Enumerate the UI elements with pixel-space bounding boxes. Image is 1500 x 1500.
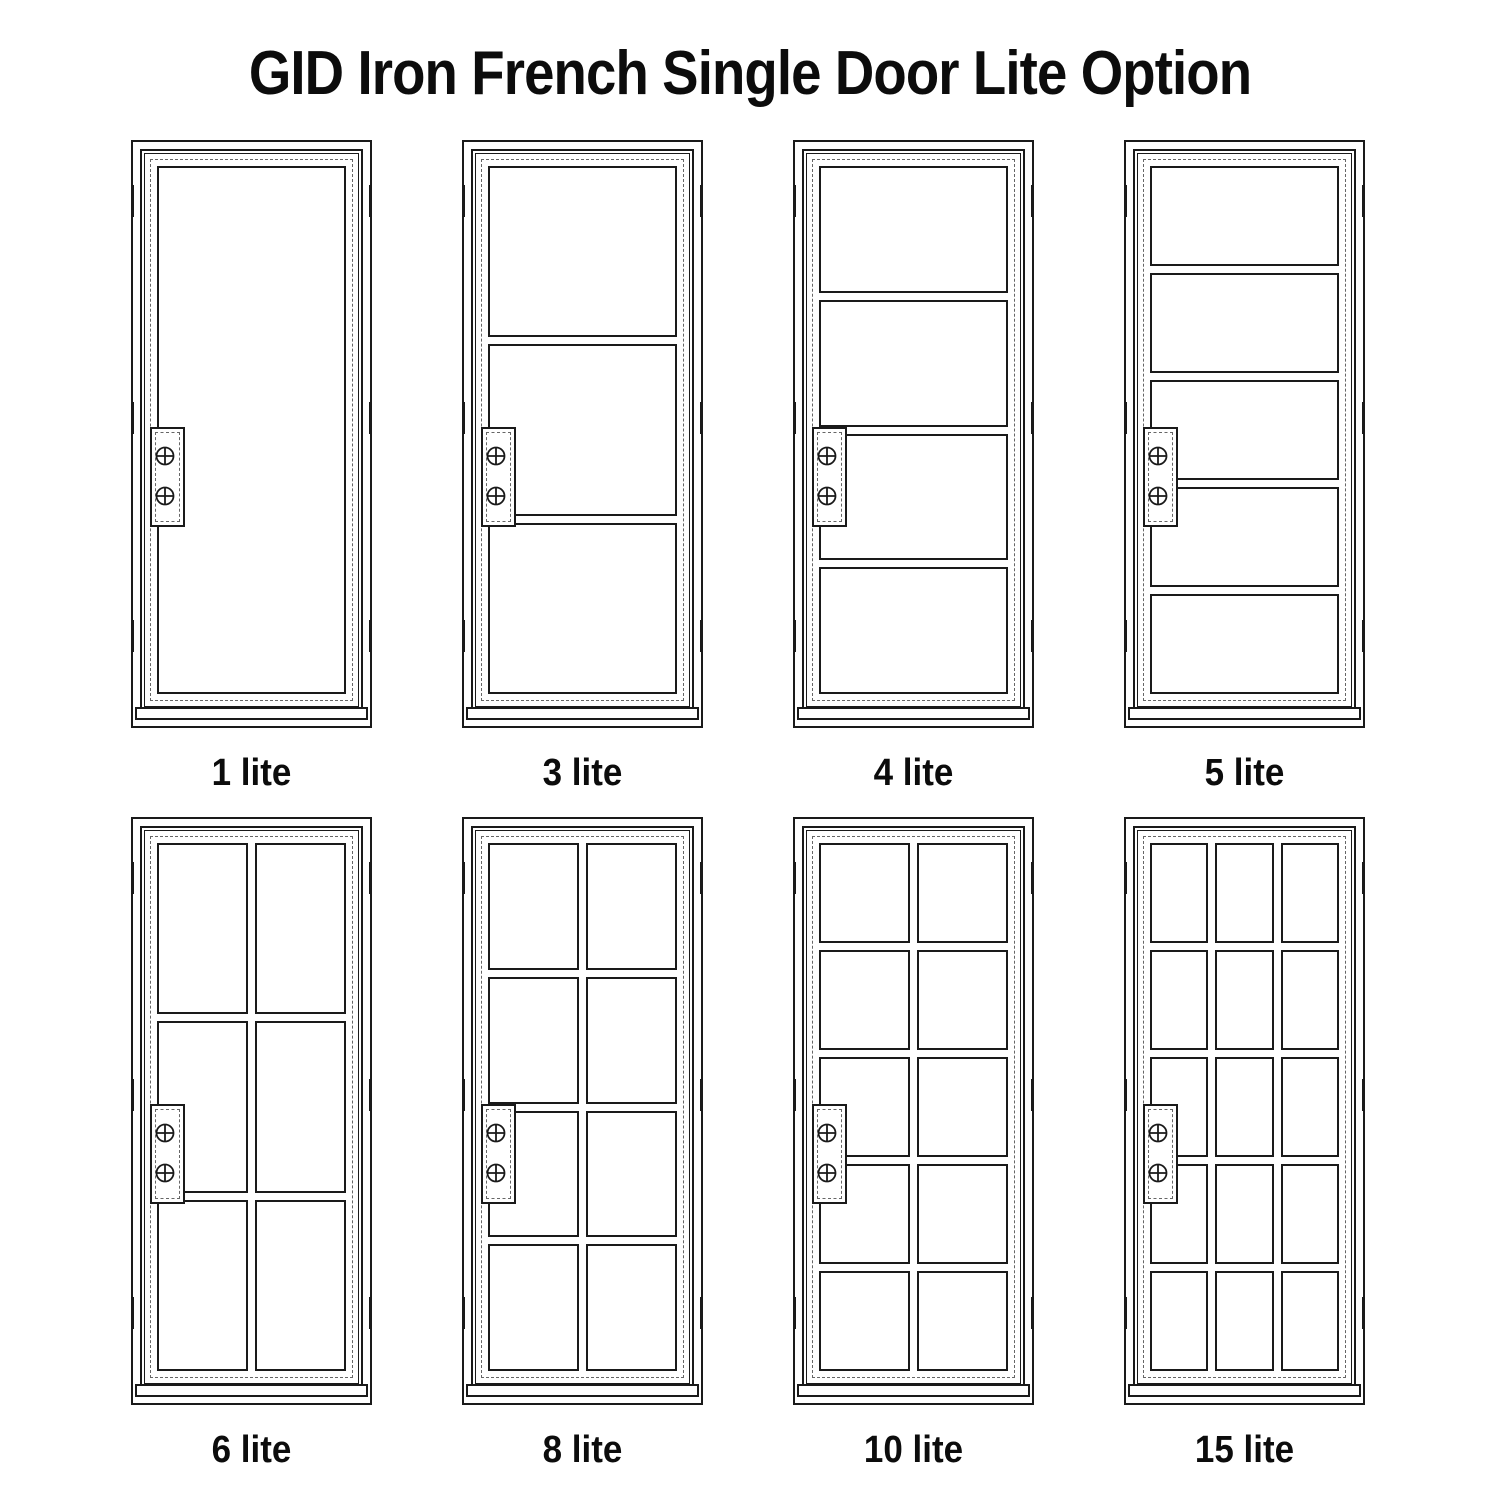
glass-pane xyxy=(586,1244,677,1371)
glass-pane xyxy=(586,977,677,1104)
hinge-mark-icon xyxy=(131,402,134,434)
glass-pane xyxy=(1215,843,1273,943)
glass-grid xyxy=(157,843,346,1371)
door-label: 8 lite xyxy=(472,1429,694,1472)
glass-pane xyxy=(255,843,346,1014)
glass-pane xyxy=(1281,950,1339,1050)
glass-pane xyxy=(488,843,579,970)
glass-pane xyxy=(1150,950,1208,1050)
hinge-mark-icon xyxy=(1124,402,1127,434)
glass-pane xyxy=(1215,950,1273,1050)
hinge-mark-icon xyxy=(1031,1079,1034,1111)
hinge-mark-icon xyxy=(1031,620,1034,652)
glass-pane xyxy=(819,300,1008,427)
screw-icon xyxy=(1147,445,1169,467)
hinge-mark-icon xyxy=(1124,185,1127,217)
hinge-mark-icon xyxy=(700,1079,703,1111)
glass-pane xyxy=(157,166,346,694)
hinge-mark-icon xyxy=(462,620,465,652)
hinge-mark-icon xyxy=(462,185,465,217)
hinge-mark-icon xyxy=(1124,1079,1127,1111)
glass-pane xyxy=(819,567,1008,694)
hinge-mark-icon xyxy=(700,1297,703,1329)
door-bottom-sill xyxy=(466,707,699,720)
door-figure-15-lite: 15 lite xyxy=(1124,817,1365,1472)
door-bottom-sill xyxy=(797,1384,1030,1397)
glass-pane xyxy=(819,166,1008,293)
glass-pane xyxy=(1281,843,1339,943)
screw-icon xyxy=(485,1122,507,1144)
glass-pane xyxy=(488,344,677,515)
glass-grid xyxy=(819,843,1008,1371)
hinge-mark-icon xyxy=(1362,1079,1365,1111)
hinge-mark-icon xyxy=(1124,862,1127,894)
glass-pane xyxy=(917,843,1008,943)
door-drawing xyxy=(1124,817,1365,1405)
door-bottom-sill xyxy=(135,707,368,720)
door-label: 1 lite xyxy=(141,752,363,795)
door-figure-1-lite: 1 lite xyxy=(131,140,372,795)
lock-plate xyxy=(812,427,847,527)
screw-icon xyxy=(1147,485,1169,507)
screw-icon xyxy=(485,1162,507,1184)
door-figure-3-lite: 3 lite xyxy=(462,140,703,795)
lock-plate xyxy=(812,1104,847,1204)
door-label: 4 lite xyxy=(803,752,1025,795)
hinge-mark-icon xyxy=(131,1297,134,1329)
hinge-mark-icon xyxy=(1031,185,1034,217)
lock-plate xyxy=(481,427,516,527)
hinge-mark-icon xyxy=(1124,620,1127,652)
glass-pane xyxy=(255,1021,346,1192)
hinge-mark-icon xyxy=(369,185,372,217)
glass-pane xyxy=(586,1111,677,1238)
glass-pane xyxy=(1150,843,1208,943)
glass-pane xyxy=(488,523,677,694)
hinge-mark-icon xyxy=(369,1079,372,1111)
screw-icon xyxy=(1147,1162,1169,1184)
glass-grid xyxy=(819,166,1008,694)
screw-icon xyxy=(154,1162,176,1184)
glass-grid xyxy=(1150,166,1339,694)
hinge-mark-icon xyxy=(131,862,134,894)
door-drawing xyxy=(793,140,1034,728)
glass-pane xyxy=(488,166,677,337)
screw-icon xyxy=(816,1122,838,1144)
hinge-mark-icon xyxy=(131,620,134,652)
lock-plate xyxy=(150,1104,185,1204)
hinge-mark-icon xyxy=(462,402,465,434)
hinge-mark-icon xyxy=(1362,862,1365,894)
hinge-mark-icon xyxy=(1362,402,1365,434)
glass-pane xyxy=(488,977,579,1104)
glass-grid xyxy=(488,166,677,694)
door-drawing xyxy=(131,140,372,728)
door-bottom-sill xyxy=(466,1384,699,1397)
lock-plate xyxy=(1143,1104,1178,1204)
door-drawing xyxy=(462,140,703,728)
door-bottom-sill xyxy=(1128,707,1361,720)
lock-plate xyxy=(150,427,185,527)
screw-icon xyxy=(154,485,176,507)
hinge-mark-icon xyxy=(369,1297,372,1329)
screw-icon xyxy=(816,1162,838,1184)
hinge-mark-icon xyxy=(1031,402,1034,434)
screw-icon xyxy=(816,445,838,467)
door-figure-4-lite: 4 lite xyxy=(793,140,1034,795)
screw-icon xyxy=(1147,1122,1169,1144)
glass-pane xyxy=(819,843,910,943)
hinge-mark-icon xyxy=(700,185,703,217)
glass-pane xyxy=(819,1271,910,1371)
glass-pane xyxy=(1215,1164,1273,1264)
door-drawing xyxy=(1124,140,1365,728)
glass-pane xyxy=(157,843,248,1014)
glass-pane xyxy=(157,1200,248,1371)
hinge-mark-icon xyxy=(700,620,703,652)
hinge-mark-icon xyxy=(369,620,372,652)
glass-pane xyxy=(1150,166,1339,266)
glass-pane xyxy=(586,843,677,970)
screw-icon xyxy=(485,445,507,467)
hinge-mark-icon xyxy=(793,1297,796,1329)
hinge-mark-icon xyxy=(793,402,796,434)
hinge-mark-icon xyxy=(700,402,703,434)
hinge-mark-icon xyxy=(793,1079,796,1111)
glass-pane xyxy=(1215,1057,1273,1157)
hinge-mark-icon xyxy=(1362,620,1365,652)
door-figure-5-lite: 5 lite xyxy=(1124,140,1365,795)
hinge-mark-icon xyxy=(1362,1297,1365,1329)
hinge-mark-icon xyxy=(793,620,796,652)
glass-pane xyxy=(1150,487,1339,587)
door-bottom-sill xyxy=(797,707,1030,720)
screw-icon xyxy=(154,1122,176,1144)
door-label: 5 lite xyxy=(1134,752,1356,795)
door-label: 6 lite xyxy=(141,1429,363,1472)
door-drawing xyxy=(462,817,703,1405)
hinge-mark-icon xyxy=(369,862,372,894)
door-label: 10 lite xyxy=(803,1429,1025,1472)
door-drawing xyxy=(131,817,372,1405)
hinge-mark-icon xyxy=(462,1297,465,1329)
door-label: 15 lite xyxy=(1134,1429,1356,1472)
glass-pane xyxy=(1150,1271,1208,1371)
door-figure-10-lite: 10 lite xyxy=(793,817,1034,1472)
lock-plate xyxy=(1143,427,1178,527)
hinge-mark-icon xyxy=(793,862,796,894)
hinge-mark-icon xyxy=(1362,185,1365,217)
door-bottom-sill xyxy=(1128,1384,1361,1397)
hinge-mark-icon xyxy=(369,402,372,434)
page-title: GID Iron French Single Door Lite Option xyxy=(90,38,1410,109)
glass-pane xyxy=(819,950,910,1050)
screw-icon xyxy=(154,445,176,467)
door-figure-8-lite: 8 lite xyxy=(462,817,703,1472)
hinge-mark-icon xyxy=(1124,1297,1127,1329)
glass-pane xyxy=(1281,1164,1339,1264)
glass-grid xyxy=(157,166,346,694)
lock-plate xyxy=(481,1104,516,1204)
glass-pane xyxy=(917,1057,1008,1157)
glass-grid xyxy=(488,843,677,1371)
glass-grid xyxy=(1150,843,1339,1371)
glass-pane xyxy=(917,1271,1008,1371)
door-drawing xyxy=(793,817,1034,1405)
glass-pane xyxy=(917,950,1008,1050)
hinge-mark-icon xyxy=(700,862,703,894)
screw-icon xyxy=(816,485,838,507)
door-figure-6-lite: 6 lite xyxy=(131,817,372,1472)
door-label: 3 lite xyxy=(472,752,694,795)
glass-pane xyxy=(255,1200,346,1371)
screw-icon xyxy=(485,485,507,507)
door-bottom-sill xyxy=(135,1384,368,1397)
hinge-mark-icon xyxy=(131,185,134,217)
glass-pane xyxy=(488,1244,579,1371)
glass-pane xyxy=(819,434,1008,561)
hinge-mark-icon xyxy=(462,1079,465,1111)
hinge-mark-icon xyxy=(1031,862,1034,894)
hinge-mark-icon xyxy=(131,1079,134,1111)
glass-pane xyxy=(1150,273,1339,373)
hinge-mark-icon xyxy=(793,185,796,217)
glass-pane xyxy=(1281,1057,1339,1157)
hinge-mark-icon xyxy=(462,862,465,894)
glass-pane xyxy=(917,1164,1008,1264)
glass-pane xyxy=(1150,594,1339,694)
glass-pane xyxy=(1150,380,1339,480)
glass-pane xyxy=(1281,1271,1339,1371)
glass-pane xyxy=(1215,1271,1273,1371)
hinge-mark-icon xyxy=(1031,1297,1034,1329)
